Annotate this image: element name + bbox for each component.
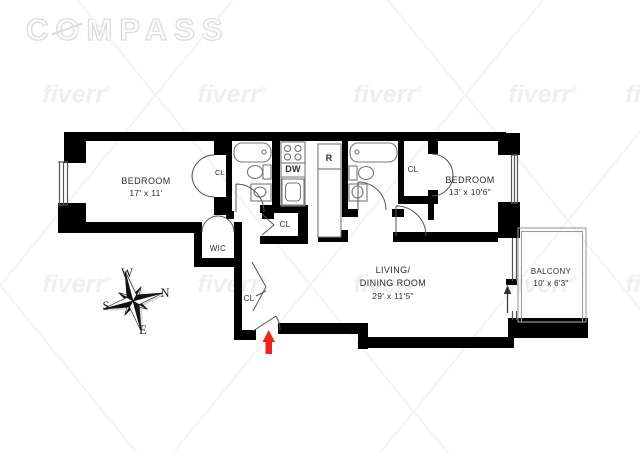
tub-drain-icon	[262, 150, 266, 154]
closet-door-arc	[192, 155, 214, 177]
dishwasher-label: DW	[285, 164, 301, 174]
tub-drain-icon	[355, 150, 359, 154]
burner-icon	[284, 154, 290, 160]
toilet-tank-icon	[349, 166, 357, 180]
floor-plan-drawing: W N S E BEDROOM 17' x 11' BEDROOM 13' x …	[0, 0, 640, 453]
stove-icon	[281, 142, 305, 163]
living-label-2: DINING ROOM	[360, 278, 426, 288]
bedroom-right-dims: 13' x 10'6"	[449, 187, 491, 197]
entry-door	[253, 316, 280, 331]
entry-arrow	[263, 330, 276, 354]
living-label-1: LIVING/	[376, 265, 411, 275]
closet-door-arc	[432, 154, 453, 175]
toilet-bowl-icon	[359, 167, 374, 180]
balcony-label: BALCONY	[531, 267, 572, 276]
closet-label: CL	[408, 165, 419, 174]
toilet-tank-icon	[263, 165, 271, 179]
closet-label: CL	[215, 168, 225, 177]
counter-column	[318, 169, 341, 237]
compass-south-label: S	[103, 299, 110, 313]
compass-north-label: N	[160, 286, 169, 300]
closet-door-arc	[192, 175, 214, 197]
wic-door-arc	[202, 216, 218, 232]
compass-west-label: W	[121, 266, 133, 280]
living-dims: 29' x 11'5"	[372, 291, 414, 301]
closet-label: CL	[280, 220, 291, 229]
bedroom-left-dims: 17' x 11'	[129, 188, 162, 198]
burner-icon	[295, 154, 301, 160]
balcony-dims: 10' x 6'3"	[533, 279, 568, 288]
compass-rose: W N S E	[95, 263, 173, 341]
closet-label: CL	[244, 294, 255, 303]
compass-east-label: E	[139, 323, 147, 337]
bedroom-left-label: BEDROOM	[121, 176, 170, 186]
toilet-bowl-icon	[248, 166, 263, 179]
burner-icon	[284, 145, 290, 151]
refrigerator-label: R	[326, 153, 333, 163]
burner-icon	[295, 145, 301, 151]
bedroom-right-label: BEDROOM	[445, 175, 494, 185]
wic-label: WIC	[210, 244, 226, 253]
hall-closet-bifold-door	[252, 262, 266, 311]
floor-plan-page: COMPASS fiverr® fiverr® fiverr® fiverr® …	[0, 0, 640, 453]
kitchen-sink-basin-icon	[286, 183, 301, 201]
